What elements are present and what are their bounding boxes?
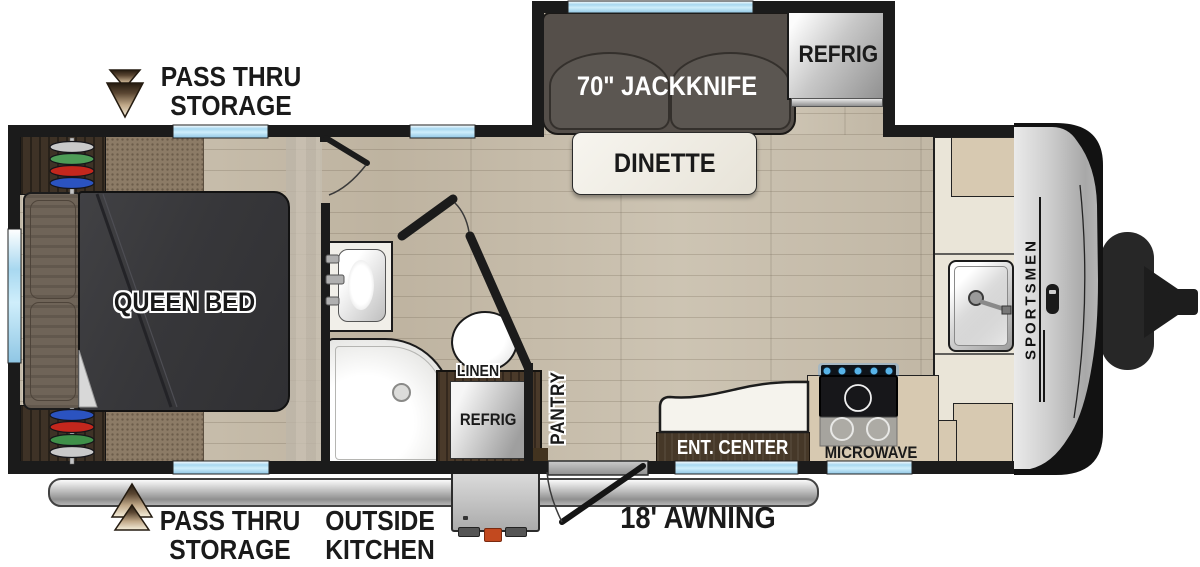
refrig-main-label: REFRIG [798,42,878,67]
bathroom-vanity [324,241,393,332]
pass-thru-storage-top-label: PASS THRU STORAGE [160,62,303,120]
refrig-vent [791,98,883,107]
refrigerator-outside: REFRIG [450,381,526,459]
outside-kitchen-unit [451,470,540,532]
kitchen-sink [948,260,1014,352]
pantry-label-wrap: PANTRY [535,350,583,466]
hitch-tongue-icon [1144,266,1197,338]
brand-emblem-icon [1046,284,1059,314]
queen-bed-label: QUEEN BED [103,288,266,316]
brand-text: SPORTSMEN [1022,238,1039,360]
pillow [30,200,76,299]
propane-tanks-icon [1101,232,1154,370]
counter-section [953,403,1013,464]
unit-foot [458,527,480,537]
refrigerator-main: REFRIG [787,10,889,100]
brand-underline [1039,197,1041,402]
outside-kitchen-label: OUTSIDE KITCHEN [308,506,452,564]
propane-connector-icon [484,528,502,542]
awning-label: 18' AWNING [617,502,779,535]
ent-center-label: ENT. CENTER [677,438,788,459]
bedroom-wood-strip [286,136,322,463]
microwave-label: MICROWAVE [809,444,932,462]
wardrobe-front [20,136,106,195]
pillow [30,302,76,401]
pantry-label: PANTRY [549,371,569,445]
shower-drain-icon [392,383,411,402]
jackknife-label: 70" JACKKNIFE [562,72,771,100]
counter-section [951,137,1019,197]
bed-headboard [23,192,84,410]
hitch-coupler-icon [1158,289,1198,315]
ent-center-cabinet: ENT. CENTER [656,432,810,464]
dinette-table: DINETTE [572,132,757,195]
unit-foot [505,527,527,537]
floorplan-canvas: QUEEN BED REFRIG LINEN PANTRY 70" JACKKN… [0,0,1200,567]
brand-underline-short [1043,330,1045,402]
refrig-outside-label: REFRIG [460,411,517,429]
pass-thru-storage-bottom-label: PASS THRU STORAGE [158,506,302,564]
linen-label: LINEN [438,364,519,381]
wardrobe-rear [20,405,106,465]
dinette-label: DINETTE [614,149,716,177]
vanity-sink-icon [338,249,386,322]
pass-thru-arrow-down-icon [107,70,143,117]
